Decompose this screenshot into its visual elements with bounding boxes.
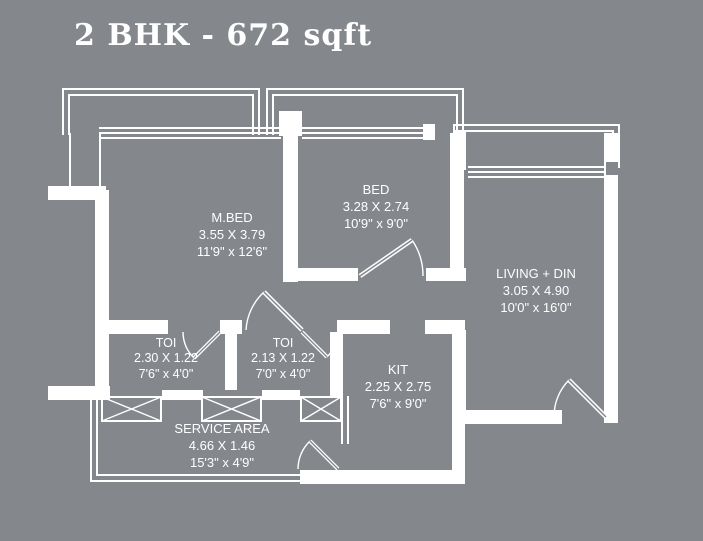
room-dims-ft: 15'3" x 4'9": [174, 455, 269, 472]
room-dims-m: 3.55 X 3.79: [197, 227, 267, 244]
room-name: TOI: [251, 336, 315, 351]
kitchen-top-wall-right: [425, 320, 465, 334]
room-label-toi1: TOI 2.30 X 1.22 7'6" x 4'0": [134, 336, 198, 382]
corridor-toilet-wall-3: [337, 320, 390, 334]
room-name: LIVING + DIN: [496, 266, 576, 283]
room-dims-ft: 10'0" x 16'0": [496, 300, 576, 317]
living-right-wall-notch: [606, 162, 618, 175]
toilet-bottom-wall-2: [262, 390, 300, 400]
service-parapet-left: [90, 398, 92, 482]
room-name: M.BED: [197, 210, 267, 227]
room-name: SERVICE AREA: [174, 421, 269, 438]
room-dims-m: 4.66 X 1.46: [174, 438, 269, 455]
bed-bottom-wall-right: [426, 268, 466, 281]
mbed-bed-divider-wall: [283, 136, 298, 282]
room-dims-ft: 7'6" x 4'0": [134, 367, 198, 382]
bed-window: [302, 137, 423, 139]
room-label-kit: KIT 2.25 X 2.75 7'6" x 9'0": [365, 362, 432, 413]
room-dims-m: 3.28 X 2.74: [343, 199, 410, 216]
room-dims-ft: 11'9" x 12'6": [197, 244, 267, 261]
room-label-toi2: TOI 2.13 X 1.22 7'0" x 4'0": [251, 336, 315, 382]
mbed-window: [99, 127, 281, 129]
bed-bottom-wall-left: [298, 268, 358, 281]
room-dims-m: 2.30 X 1.22: [134, 351, 198, 366]
room-label-living: LIVING + DIN 3.05 X 4.90 10'0" x 16'0": [496, 266, 576, 317]
room-name: KIT: [365, 362, 432, 379]
room-dims-m: 2.13 X 1.22: [251, 351, 315, 366]
room-name: TOI: [134, 336, 198, 351]
mbed-window: [99, 132, 281, 134]
bed-window-end-block: [423, 124, 435, 140]
terrace-outline-right-inner: [459, 130, 614, 168]
floorplan-canvas: 2 BHK - 672 sqft: [0, 0, 703, 541]
room-dims-m: 2.25 X 2.75: [365, 379, 432, 396]
room-label-service: SERVICE AREA 4.66 X 1.46 15'3" x 4'9": [174, 421, 269, 472]
toilet-divider-wall: [225, 332, 237, 390]
service-parapet-bottom: [90, 480, 306, 482]
living-left-wall-top-block: [453, 130, 466, 170]
living-right-wall: [604, 133, 618, 423]
bed-window: [302, 127, 423, 129]
left-wall-block-top: [48, 186, 106, 200]
duct-x-box: [300, 396, 342, 422]
living-bottom-wall: [452, 410, 562, 424]
mbed-bed-column: [279, 111, 302, 136]
room-name: BED: [343, 182, 410, 199]
living-left-wall-lower: [452, 330, 466, 422]
plan-title: 2 BHK - 672 sqft: [74, 18, 372, 53]
toi2-right-wall: [330, 332, 343, 398]
living-window: [468, 166, 604, 168]
service-kitchen-divider: [347, 396, 349, 444]
room-dims-ft: 10'9" x 9'0": [343, 216, 410, 233]
left-projection-line: [99, 133, 101, 188]
corridor-toilet-wall-1: [95, 320, 168, 334]
duct-x-box: [201, 396, 262, 422]
toilet-bottom-wall-1: [162, 390, 203, 400]
room-dims-ft: 7'6" x 9'0": [365, 396, 432, 413]
kitchen-bottom-wall: [300, 470, 465, 484]
room-label-mbed: M.BED 3.55 X 3.79 11'9" x 12'6": [197, 210, 267, 261]
service-parapet-left: [96, 398, 98, 476]
room-dims-m: 3.05 X 4.90: [496, 283, 576, 300]
mbed-window: [99, 137, 281, 139]
service-parapet-bottom: [96, 474, 306, 476]
room-dims-ft: 7'0" x 4'0": [251, 367, 315, 382]
living-window: [468, 171, 604, 173]
mbed-left-wall: [95, 190, 109, 398]
duct-x-box: [101, 396, 162, 422]
living-window: [468, 176, 604, 178]
left-projection-line: [69, 133, 71, 188]
bed-window: [302, 132, 423, 134]
room-label-bed: BED 3.28 X 2.74 10'9" x 9'0": [343, 182, 410, 233]
